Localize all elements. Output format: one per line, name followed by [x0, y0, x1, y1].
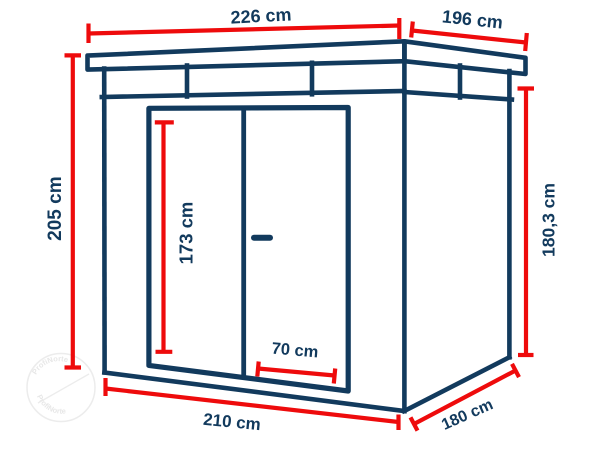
svg-text:180,3 cm: 180,3 cm: [539, 183, 559, 257]
svg-text:173 cm: 173 cm: [175, 202, 196, 265]
svg-text:226 cm: 226 cm: [230, 4, 292, 27]
svg-text:205 cm: 205 cm: [45, 176, 66, 240]
